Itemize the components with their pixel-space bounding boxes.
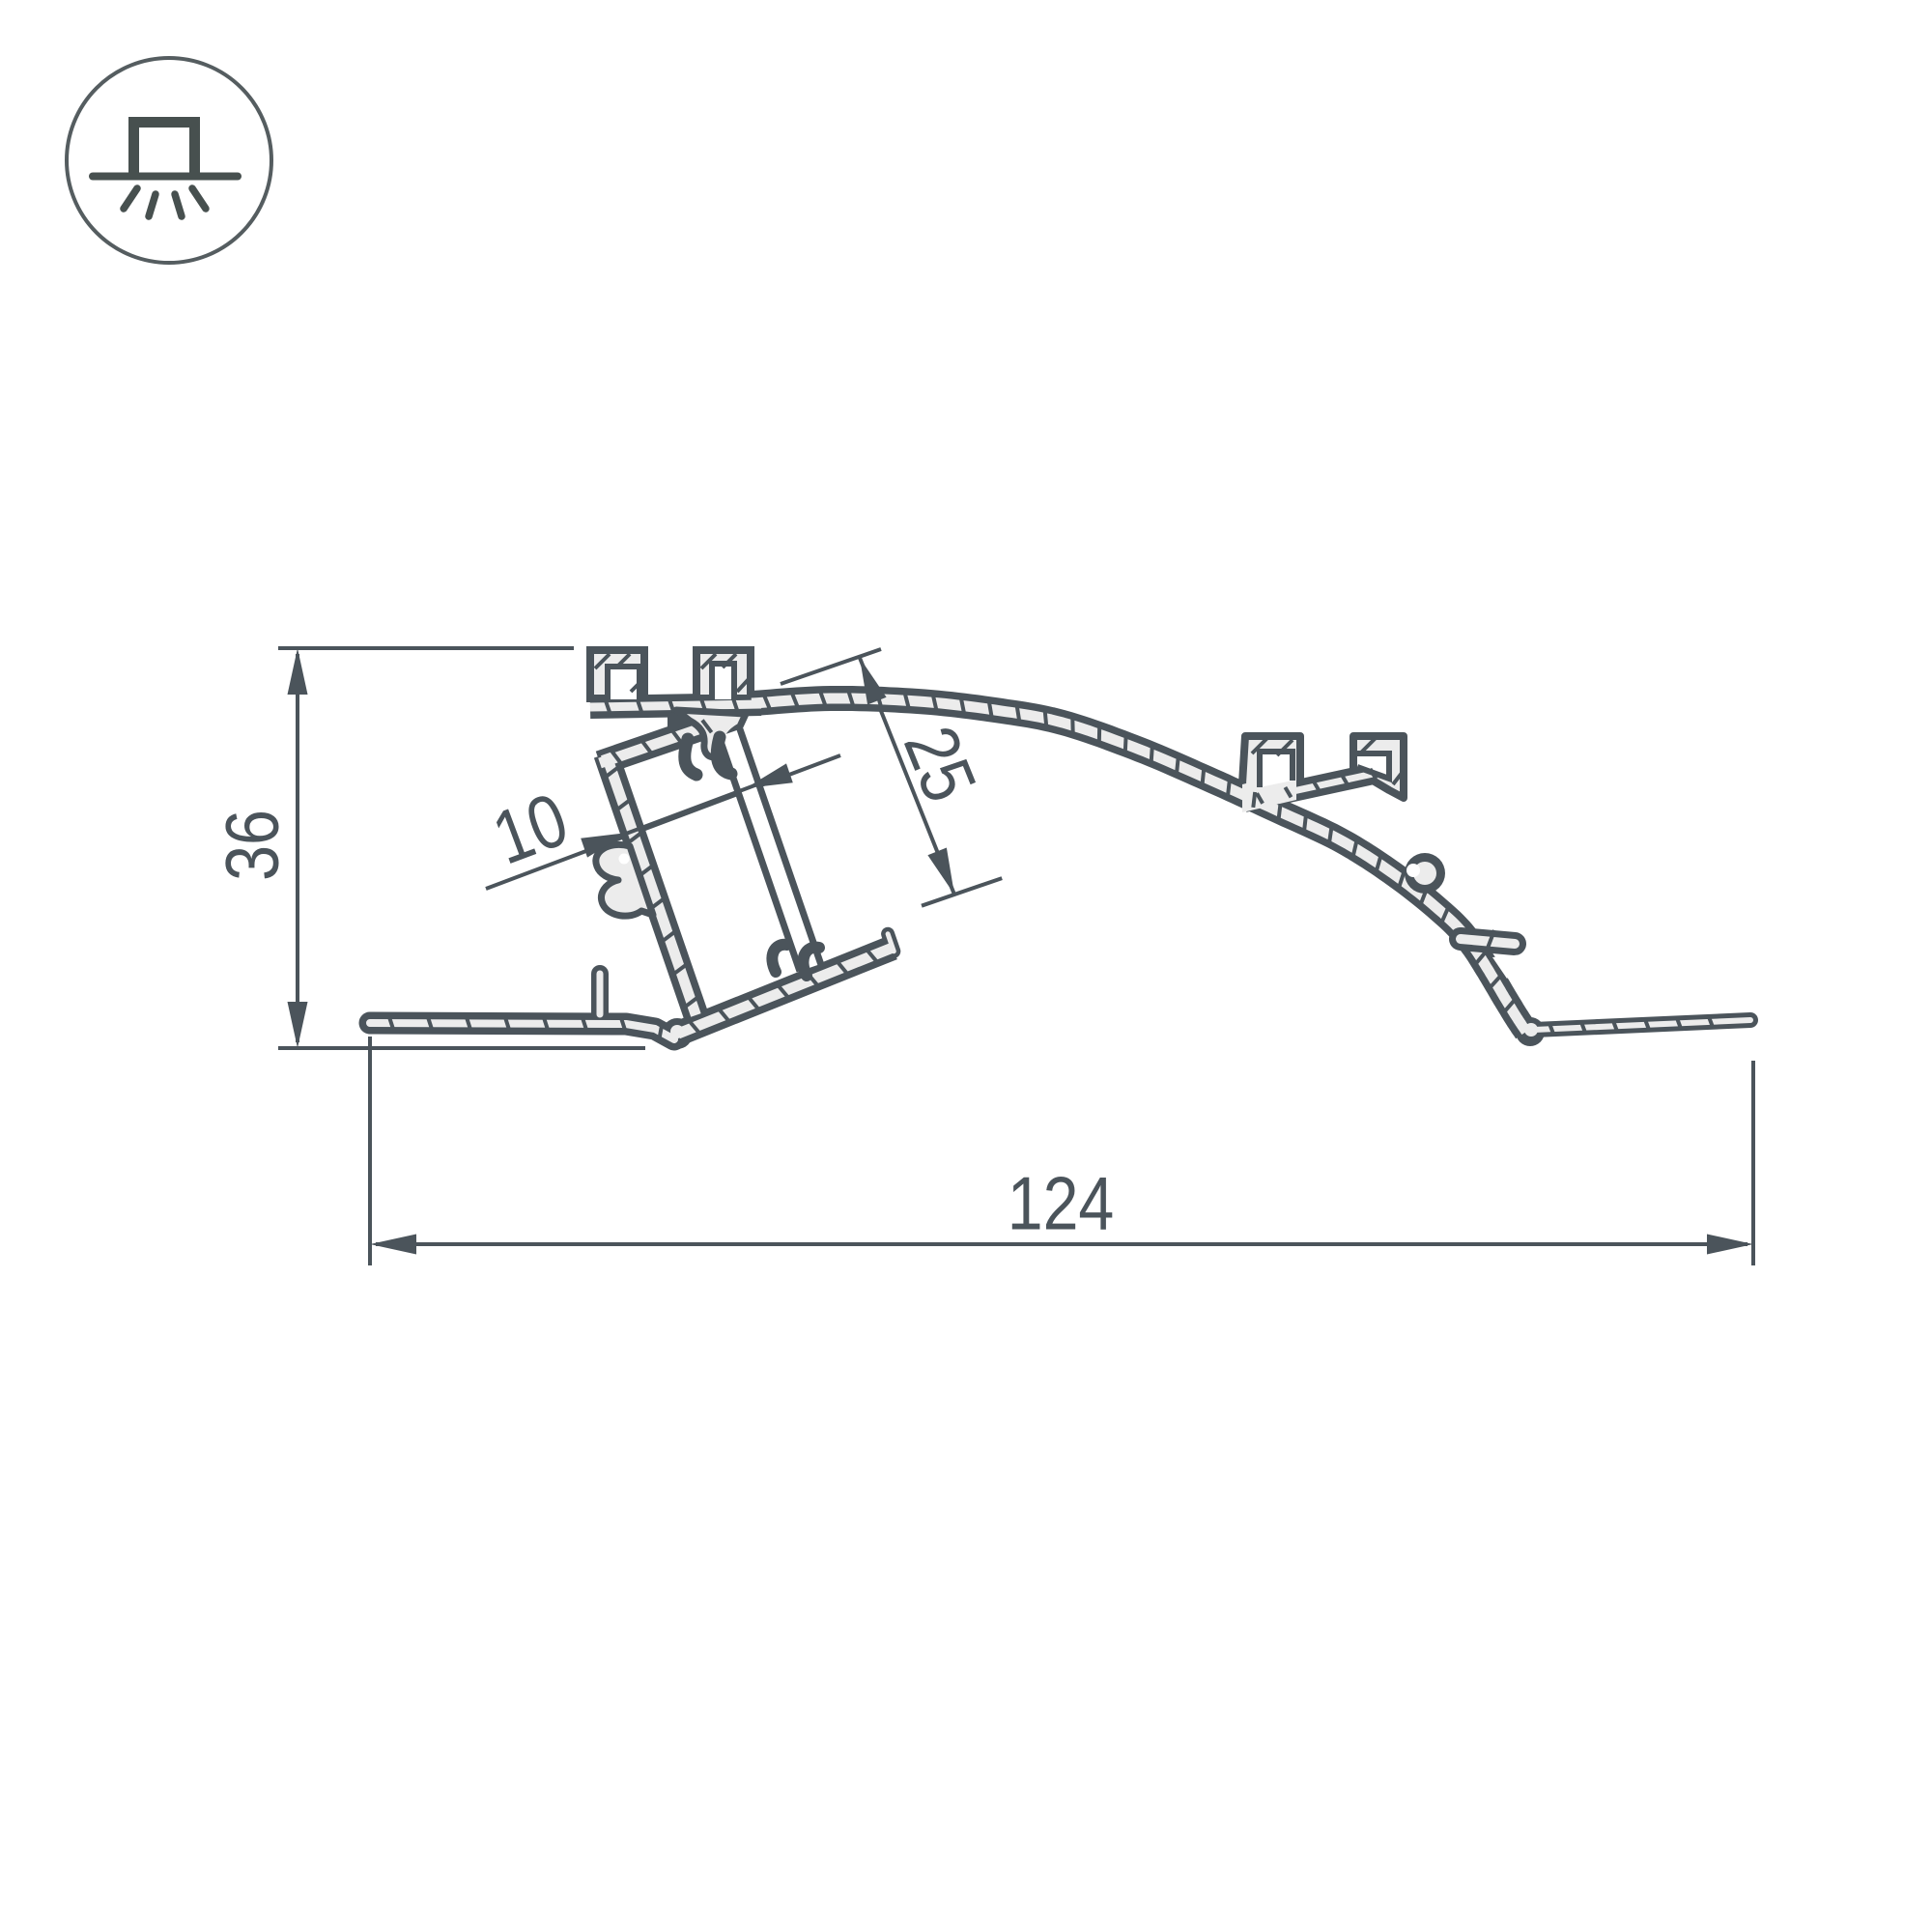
svg-text:124: 124 [1008,1161,1115,1245]
svg-text:36: 36 [210,810,294,881]
